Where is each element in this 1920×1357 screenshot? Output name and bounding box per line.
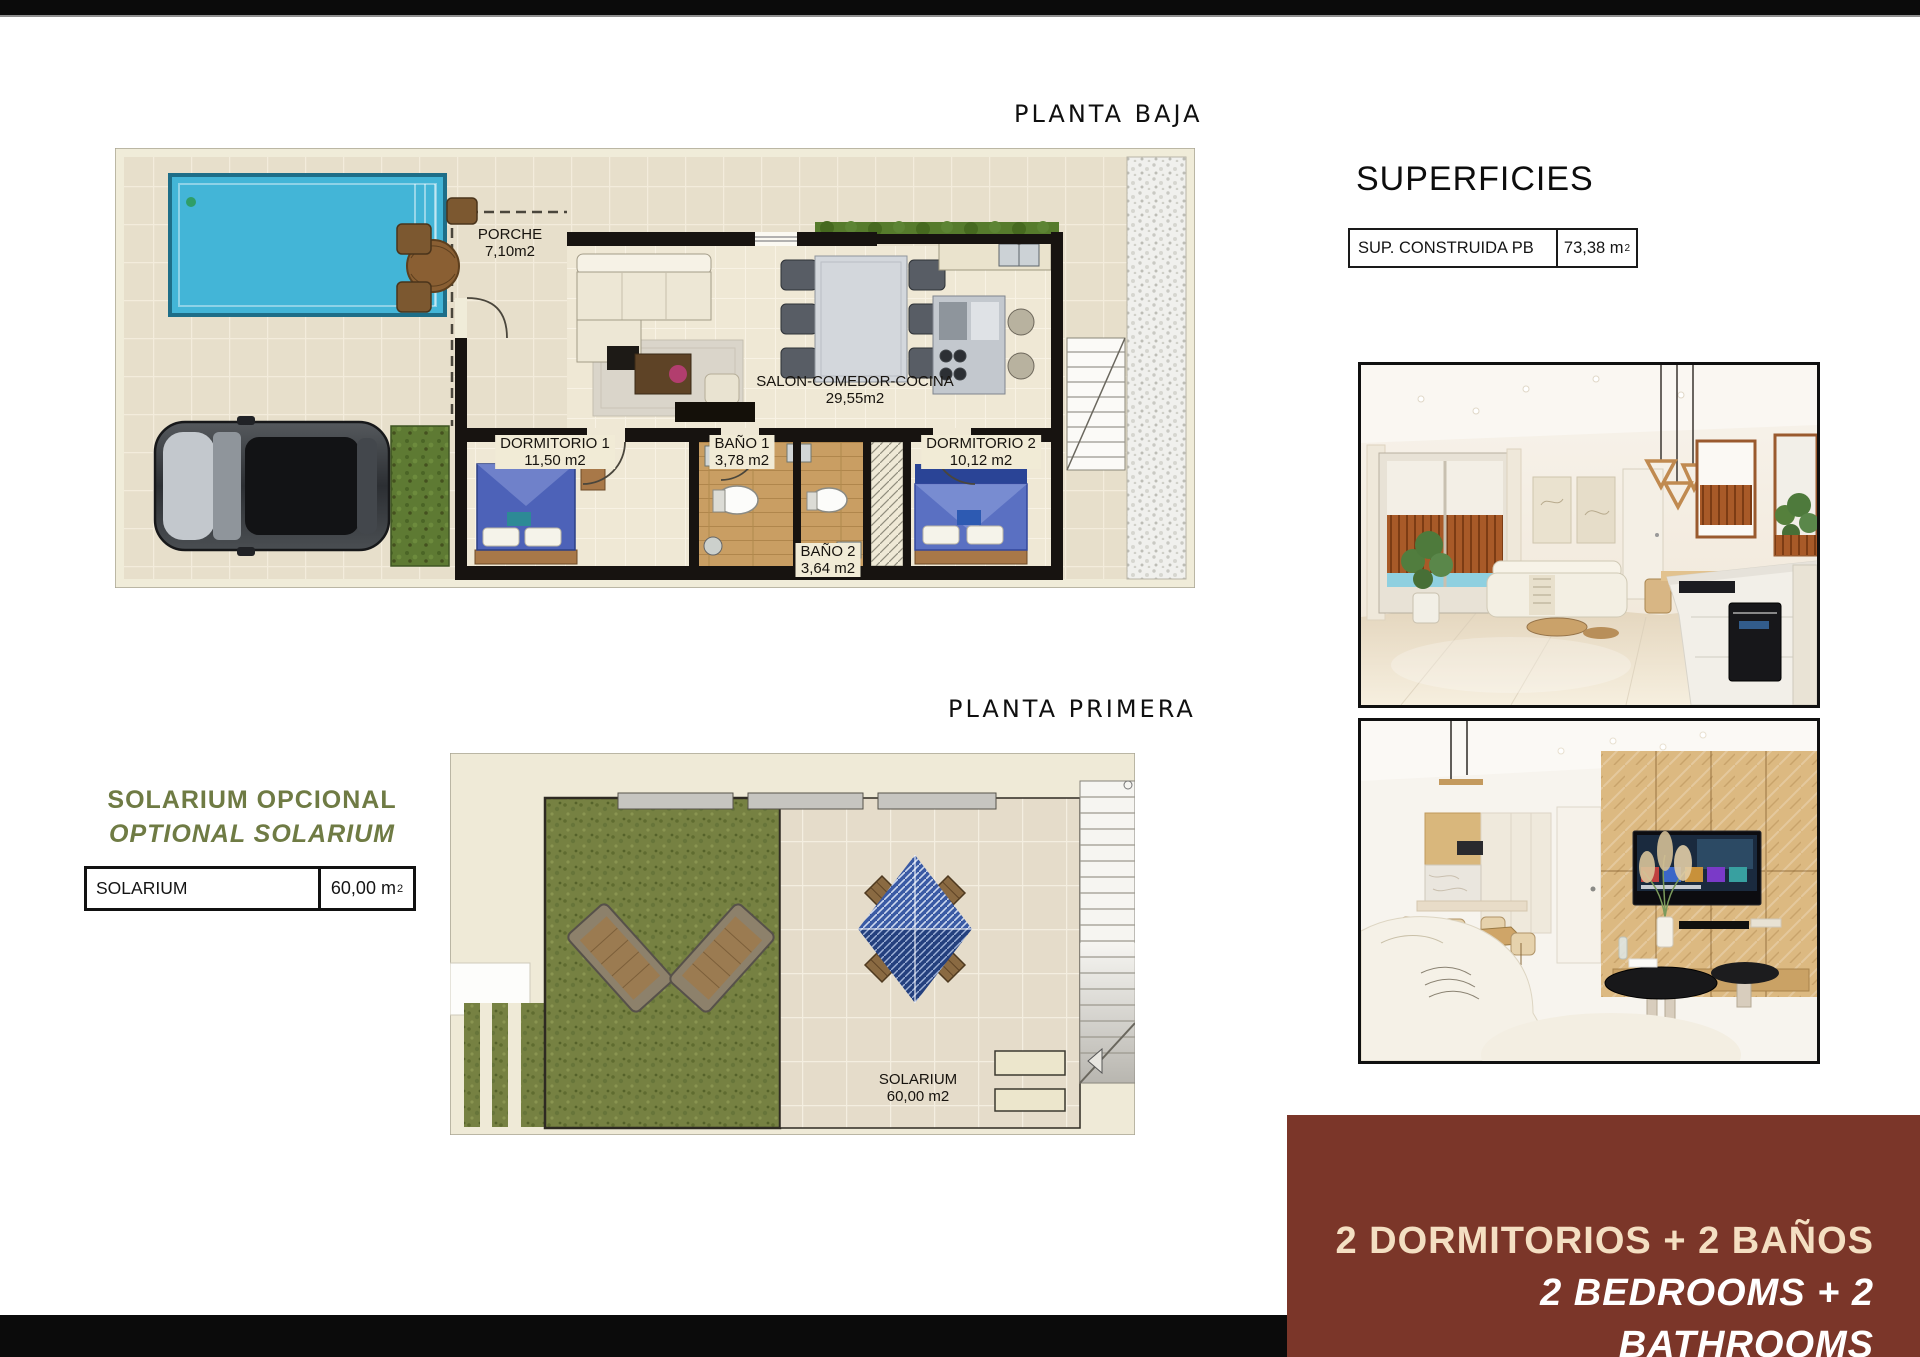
staircase-sketch (1067, 338, 1125, 470)
ground-floor-plan: PORCHE 7,10m2 SALON-COMEDOR-COCINA 29,55… (115, 148, 1195, 588)
car-top-view (155, 416, 389, 556)
photo-living-kitchen-render (1361, 365, 1817, 705)
kitchen-units (933, 239, 1051, 394)
solarium-table: SOLARIUM 60,00 m2 (84, 866, 416, 911)
room-label-salon: SALON-COMEDOR-COCINA 29,55m2 (756, 373, 954, 407)
photo-tv-lounge (1358, 718, 1820, 1064)
hedge (391, 426, 449, 566)
photo-tv-lounge-render (1361, 721, 1817, 1061)
solarium-table-value: 60,00 m2 (318, 869, 413, 908)
bottom-black-bar (0, 1315, 1287, 1357)
room-label-bano-2: BAÑO 2 3,64 m2 (795, 543, 860, 577)
surfaces-table-value: 73,38 m2 (1556, 230, 1636, 266)
solarium-table-label: SOLARIUM (87, 869, 318, 908)
surfaces-table: SUP. CONSTRUIDA PB 73,38 m2 (1348, 228, 1638, 268)
banner-line-en: 2 BEDROOMS + 2 BATHROOMS (1287, 1267, 1874, 1357)
room-label-bano-1: BAÑO 1 3,78 m2 (709, 435, 774, 469)
top-gray-line (0, 15, 1920, 17)
ground-plan-drawing (115, 148, 1195, 588)
banner-line-es: 2 DORMITORIOS + 2 BAÑOS (1287, 1215, 1874, 1267)
first-floor-plan: SOLARIUM 60,00 m2 (450, 753, 1135, 1135)
sofa (1487, 561, 1627, 617)
kitchen-peninsula (1667, 561, 1817, 705)
top-black-bar (0, 0, 1920, 15)
solarium-optional-heading-en: OPTIONAL SOLARIUM (90, 820, 414, 849)
staircase (1080, 781, 1135, 1083)
ground-floor-title: PLANTA BAJA (1014, 100, 1203, 128)
gravel-strip (1127, 157, 1186, 579)
brochure-page: PLANTA BAJA (0, 0, 1920, 1357)
solarium-optional-heading-es: SOLARIUM OPCIONAL (90, 786, 414, 815)
room-label-dormitorio-2: DORMITORIO 2 10,12 m2 (921, 435, 1041, 469)
skylight-bars (618, 793, 996, 809)
surfaces-heading: SUPERFICIES (1356, 160, 1594, 199)
first-plan-drawing (450, 753, 1135, 1135)
room-label-dormitorio-1: DORMITORIO 1 11,50 m2 (495, 435, 615, 469)
room-label-porche: PORCHE 7,10m2 (478, 226, 542, 260)
room-label-solarium: SOLARIUM 60,00 m2 (879, 1071, 957, 1105)
summary-banner: 2 DORMITORIOS + 2 BAÑOS 2 BEDROOMS + 2 B… (1287, 1115, 1920, 1357)
photo-living-kitchen (1358, 362, 1820, 708)
dining-set (781, 256, 945, 382)
first-floor-title: PLANTA PRIMERA (948, 695, 1196, 723)
surfaces-table-label: SUP. CONSTRUIDA PB (1350, 230, 1556, 266)
bed-dormitorio-2 (915, 464, 1027, 564)
